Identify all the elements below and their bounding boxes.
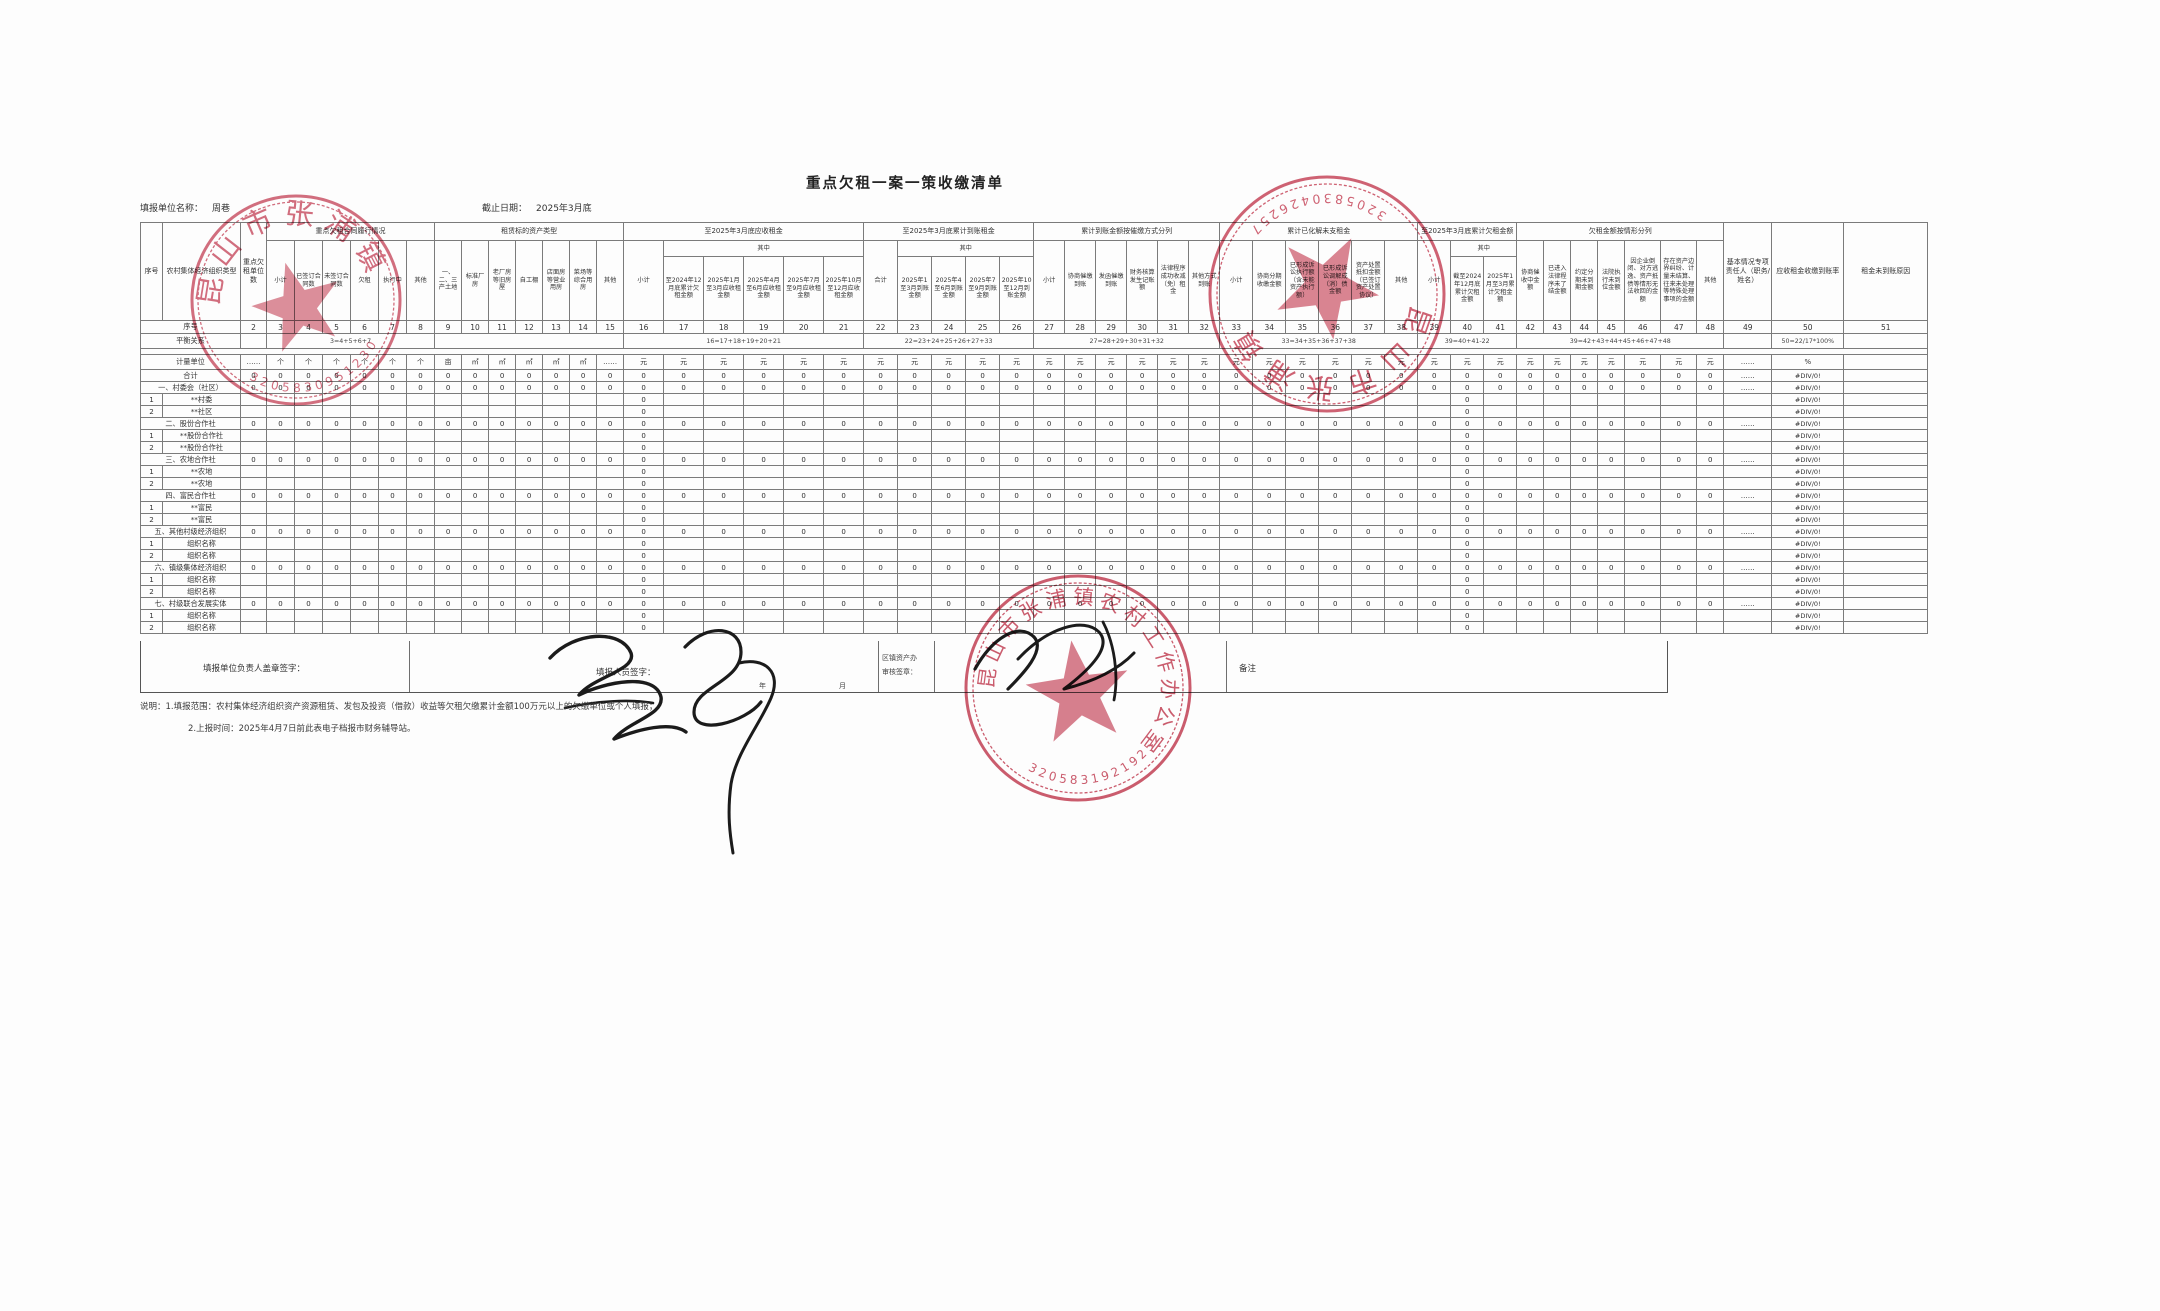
table-cell — [824, 574, 864, 586]
table-cell — [543, 514, 570, 526]
table-cell: 0 — [435, 562, 462, 574]
table-cell — [241, 478, 267, 490]
table-cell: 0 — [1571, 598, 1598, 610]
table-cell — [1598, 574, 1625, 586]
table-cell — [323, 466, 351, 478]
table-cell: 元 — [664, 355, 704, 370]
table-cell: 0 — [898, 454, 932, 466]
table-cell — [1484, 466, 1517, 478]
table-cell: 0 — [966, 418, 1000, 430]
table-cell: 0 — [379, 418, 407, 430]
table-cell — [1484, 538, 1517, 550]
table-cell — [932, 466, 966, 478]
table-cell — [932, 406, 966, 418]
table-cell: 0 — [704, 562, 744, 574]
leader-handwritten-signature — [535, 603, 797, 859]
table-cell: 12 — [516, 321, 543, 334]
table-cell — [1598, 478, 1625, 490]
table-cell: 0 — [407, 526, 435, 538]
table-cell: 17 — [664, 321, 704, 334]
table-cell — [570, 502, 597, 514]
table-cell — [241, 466, 267, 478]
table-cell — [489, 574, 516, 586]
table-cell — [435, 610, 462, 622]
table-cell — [1385, 622, 1418, 634]
table-cell — [516, 478, 543, 490]
table-cell: 0 — [1484, 526, 1517, 538]
table-cell: ㎡ — [570, 355, 597, 370]
table-cell — [1517, 502, 1544, 514]
table-cell — [898, 538, 932, 550]
table-cell: 19 — [744, 321, 784, 334]
table-cell: 元 — [1034, 355, 1065, 370]
table-cell — [1544, 574, 1571, 586]
table-cell — [864, 538, 898, 550]
table-cell — [1189, 502, 1220, 514]
table-cell — [932, 514, 966, 526]
table-cell — [1352, 430, 1385, 442]
table-cell — [1724, 406, 1772, 418]
table-cell: 0 — [1253, 454, 1286, 466]
table-cell: 1 — [141, 430, 163, 442]
table-cell: 0 — [1189, 490, 1220, 502]
table-cell — [435, 514, 462, 526]
table-cell — [1724, 538, 1772, 550]
table-cell: 0 — [543, 370, 570, 382]
table-cell — [462, 514, 489, 526]
table-cell: 0 — [664, 454, 704, 466]
table-cell: 0 — [624, 382, 664, 394]
table-cell: 0 — [624, 502, 664, 514]
table-cell — [1418, 586, 1451, 598]
table-cell — [1352, 502, 1385, 514]
table-cell — [664, 478, 704, 490]
table-cell — [462, 586, 489, 598]
table-cell: 29 — [1096, 321, 1127, 334]
table-cell — [824, 406, 864, 418]
table-cell — [1253, 514, 1286, 526]
table-cell — [435, 394, 462, 406]
table-cell — [1724, 574, 1772, 586]
table-cell — [1220, 514, 1253, 526]
table-cell — [1253, 610, 1286, 622]
table-cell — [241, 550, 267, 562]
header-cell: 法院执行未到位金额 — [1598, 241, 1625, 321]
table-cell — [744, 430, 784, 442]
table-cell: 0 — [1625, 598, 1661, 610]
table-cell: 0 — [1451, 466, 1484, 478]
table-cell — [597, 574, 624, 586]
note-line-2: 2.上报时间：2025年4月7日前此表电子档报市财务辅导站。 — [188, 722, 416, 734]
table-cell: #DIV/0! — [1772, 622, 1844, 634]
table-cell: 0 — [1697, 382, 1724, 394]
header-cell: 至2025年3月底应收租金 — [624, 223, 864, 241]
table-cell — [407, 406, 435, 418]
table-cell — [462, 502, 489, 514]
table-cell — [1319, 538, 1352, 550]
table-cell: 0 — [1661, 562, 1697, 574]
table-cell — [570, 442, 597, 454]
table-cell — [1220, 586, 1253, 598]
table-cell: 0 — [1451, 370, 1484, 382]
table-cell: 0 — [1544, 370, 1571, 382]
table-cell — [323, 610, 351, 622]
table-cell: 0 — [351, 526, 379, 538]
table-cell: 0 — [462, 418, 489, 430]
table-cell — [1661, 502, 1697, 514]
table-cell — [932, 430, 966, 442]
table-cell — [1418, 550, 1451, 562]
data-row: 1**富民00#DIV/0! — [141, 502, 1928, 514]
table-cell — [1598, 514, 1625, 526]
table-cell — [295, 550, 323, 562]
header-cell: 2025年10至12月到账金额 — [1000, 257, 1034, 321]
table-cell — [1697, 478, 1724, 490]
table-cell — [664, 502, 704, 514]
table-cell: 31 — [1158, 321, 1189, 334]
table-cell — [407, 574, 435, 586]
table-cell — [516, 574, 543, 586]
document-title: 重点欠租一案一策收缴清单 — [750, 172, 1060, 193]
table-cell: **富民 — [163, 514, 241, 526]
header-cell: 欠租金额按情形分列 — [1517, 223, 1724, 241]
table-cell — [1661, 586, 1697, 598]
table-cell: 0 — [1352, 526, 1385, 538]
table-cell: 0 — [489, 418, 516, 430]
table-cell — [864, 406, 898, 418]
table-cell: 0 — [624, 442, 664, 454]
header-cell: 序号 — [141, 223, 163, 321]
table-cell: 0 — [435, 490, 462, 502]
table-cell — [1571, 430, 1598, 442]
table-cell — [1544, 466, 1571, 478]
table-cell: 0 — [624, 394, 664, 406]
table-cell: 0 — [1418, 526, 1451, 538]
table-cell — [1385, 538, 1418, 550]
table-cell — [379, 430, 407, 442]
table-cell — [516, 406, 543, 418]
table-cell — [1544, 514, 1571, 526]
table-cell: 0 — [1127, 526, 1158, 538]
table-cell: 元 — [932, 355, 966, 370]
table-cell — [704, 502, 744, 514]
table-cell: 0 — [1000, 526, 1034, 538]
table-cell — [1253, 478, 1286, 490]
table-cell: 组织名称 — [163, 610, 241, 622]
table-cell — [435, 478, 462, 490]
table-cell — [323, 586, 351, 598]
table-cell — [1096, 550, 1127, 562]
table-cell — [1598, 466, 1625, 478]
table-cell — [597, 466, 624, 478]
table-cell: 0 — [1352, 562, 1385, 574]
table-cell: 0 — [664, 490, 704, 502]
table-cell: 0 — [543, 562, 570, 574]
table-cell — [1517, 394, 1544, 406]
table-cell — [704, 514, 744, 526]
table-cell: 0 — [1544, 382, 1571, 394]
table-cell: 39=42+43+44+45+46+47+48 — [1517, 334, 1724, 349]
table-cell: 42 — [1517, 321, 1544, 334]
table-cell: 0 — [1319, 490, 1352, 502]
table-cell: 0 — [295, 526, 323, 538]
table-cell — [323, 550, 351, 562]
table-cell — [1158, 514, 1189, 526]
table-cell — [351, 586, 379, 598]
table-cell: 0 — [1220, 526, 1253, 538]
table-cell — [784, 502, 824, 514]
table-cell — [1034, 502, 1065, 514]
table-cell — [1484, 586, 1517, 598]
cutoff-date-value: 2025年3月底 — [536, 204, 592, 214]
official-stamp-bottom-center: 昆山市张浦镇农村工作办公室 3205831921925 — [958, 568, 1198, 808]
table-cell: 元 — [1000, 355, 1034, 370]
table-cell — [864, 394, 898, 406]
table-cell: …… — [1724, 490, 1772, 502]
table-cell — [1000, 430, 1034, 442]
table-cell — [898, 478, 932, 490]
table-cell: 0 — [1598, 598, 1625, 610]
table-cell — [744, 574, 784, 586]
table-cell: 0 — [1661, 490, 1697, 502]
table-cell: 0 — [784, 382, 824, 394]
table-cell — [1724, 430, 1772, 442]
table-cell — [489, 406, 516, 418]
table-cell — [295, 622, 323, 634]
table-cell — [1484, 550, 1517, 562]
table-cell — [966, 442, 1000, 454]
table-cell — [295, 478, 323, 490]
table-cell: #DIV/0! — [1772, 598, 1844, 610]
table-cell — [1661, 514, 1697, 526]
table-cell — [966, 406, 1000, 418]
table-cell: 0 — [1352, 598, 1385, 610]
header-cell: 2025年1月至3月累计欠租金额 — [1484, 257, 1517, 321]
table-cell: 0 — [1451, 610, 1484, 622]
table-cell — [462, 442, 489, 454]
table-cell — [295, 514, 323, 526]
table-cell — [1385, 466, 1418, 478]
table-cell — [898, 442, 932, 454]
table-cell — [1844, 622, 1928, 634]
table-cell: 元 — [744, 355, 784, 370]
table-cell: 0 — [1127, 490, 1158, 502]
table-cell: 0 — [435, 526, 462, 538]
table-cell — [295, 430, 323, 442]
table-cell — [1625, 394, 1661, 406]
table-cell — [489, 514, 516, 526]
table-cell: 0 — [932, 454, 966, 466]
table-cell — [267, 466, 295, 478]
table-cell — [1697, 442, 1724, 454]
table-cell — [435, 502, 462, 514]
table-cell: 26 — [1000, 321, 1034, 334]
table-cell — [1418, 478, 1451, 490]
table-cell — [570, 406, 597, 418]
table-cell — [543, 586, 570, 598]
table-cell — [570, 514, 597, 526]
table-cell: ㎡ — [543, 355, 570, 370]
table-cell: 0 — [462, 490, 489, 502]
table-cell: 14 — [570, 321, 597, 334]
table-cell — [597, 550, 624, 562]
table-cell: 0 — [624, 514, 664, 526]
table-cell — [1598, 442, 1625, 454]
table-cell — [435, 406, 462, 418]
header-cell: 协商催缴到账 — [1065, 241, 1096, 321]
table-cell — [267, 514, 295, 526]
table-cell: #DIV/0! — [1772, 406, 1844, 418]
table-cell: 元 — [1661, 355, 1697, 370]
divider — [1226, 641, 1227, 692]
table-cell — [864, 478, 898, 490]
table-cell: #DIV/0! — [1772, 526, 1844, 538]
table-cell — [744, 394, 784, 406]
table-cell — [1544, 550, 1571, 562]
table-cell: 0 — [864, 454, 898, 466]
table-cell: #DIV/0! — [1772, 418, 1844, 430]
table-cell: 元 — [1484, 355, 1517, 370]
table-cell — [1220, 574, 1253, 586]
table-cell — [1697, 406, 1724, 418]
table-cell — [570, 430, 597, 442]
official-stamp-top-left: 昆山市张浦镇 3205830951230 — [183, 187, 409, 413]
table-cell — [295, 502, 323, 514]
header-cell: 老厂房等旧房屋 — [489, 241, 516, 321]
review-label-line2: 审核签章： — [882, 667, 917, 677]
data-row: 1组织名称00#DIV/0! — [141, 538, 1928, 550]
table-cell: 0 — [624, 550, 664, 562]
table-cell — [489, 394, 516, 406]
table-cell: #DIV/0! — [1772, 502, 1844, 514]
table-cell — [1127, 550, 1158, 562]
data-row: 三、农地合作社000000000000000000000000000000000… — [141, 454, 1928, 466]
table-cell: 0 — [1034, 526, 1065, 538]
table-cell — [267, 574, 295, 586]
header-cell: 2025年4月至6月应收租金额 — [744, 257, 784, 321]
table-cell — [323, 622, 351, 634]
header-cell: 至2025年3月底累计到账租金 — [864, 223, 1034, 241]
data-row: 1**股份合作社00#DIV/0! — [141, 430, 1928, 442]
table-cell — [295, 610, 323, 622]
table-cell — [704, 550, 744, 562]
table-cell: 三、农地合作社 — [141, 454, 241, 466]
table-cell — [407, 622, 435, 634]
table-cell — [543, 394, 570, 406]
table-cell: 元 — [624, 355, 664, 370]
table-cell: 0 — [1571, 490, 1598, 502]
table-cell — [1625, 514, 1661, 526]
table-cell: 元 — [864, 355, 898, 370]
table-cell — [462, 466, 489, 478]
table-cell — [1844, 562, 1928, 574]
table-cell: 1 — [141, 466, 163, 478]
review-label-line1: 区镇资产办 — [882, 653, 917, 663]
table-cell — [664, 442, 704, 454]
table-cell: …… — [1724, 418, 1772, 430]
table-cell: 0 — [1418, 598, 1451, 610]
table-cell: 0 — [1000, 382, 1034, 394]
table-cell — [543, 430, 570, 442]
table-cell — [1189, 478, 1220, 490]
table-cell: 0 — [1451, 406, 1484, 418]
table-cell: 0 — [1661, 418, 1697, 430]
table-cell: 0 — [407, 382, 435, 394]
table-cell — [1661, 430, 1697, 442]
table-cell — [407, 430, 435, 442]
table-cell — [516, 502, 543, 514]
table-cell: 元 — [784, 355, 824, 370]
table-cell — [1697, 430, 1724, 442]
table-cell: 0 — [462, 526, 489, 538]
table-cell — [1352, 574, 1385, 586]
table-cell: 0 — [1418, 562, 1451, 574]
table-cell — [704, 466, 744, 478]
table-cell — [1220, 442, 1253, 454]
table-cell — [1418, 622, 1451, 634]
table-cell — [435, 430, 462, 442]
table-cell — [1065, 406, 1096, 418]
header-cell: 2025年4至6月到账金额 — [932, 257, 966, 321]
table-cell — [1385, 514, 1418, 526]
header-cell: 标准厂房 — [462, 241, 489, 321]
table-cell — [1571, 610, 1598, 622]
table-cell — [597, 586, 624, 598]
table-cell — [351, 430, 379, 442]
table-cell: 0 — [1286, 598, 1319, 610]
table-cell — [1352, 610, 1385, 622]
table-cell — [704, 442, 744, 454]
divider — [878, 641, 879, 692]
table-cell — [1697, 514, 1724, 526]
table-cell: 27 — [1034, 321, 1065, 334]
table-cell — [379, 478, 407, 490]
table-cell: 0 — [864, 490, 898, 502]
table-cell: 0 — [898, 562, 932, 574]
table-cell: 0 — [597, 418, 624, 430]
table-cell — [570, 574, 597, 586]
header-cell: 截至2024年12月底累计欠租金额 — [1451, 257, 1484, 321]
table-cell — [1517, 478, 1544, 490]
table-cell — [379, 514, 407, 526]
table-cell: 50 — [1772, 321, 1844, 334]
table-cell — [241, 610, 267, 622]
table-cell — [784, 550, 824, 562]
table-cell: 0 — [267, 526, 295, 538]
table-cell: 0 — [1517, 526, 1544, 538]
table-cell: 0 — [1451, 478, 1484, 490]
table-cell — [1661, 550, 1697, 562]
table-cell — [379, 622, 407, 634]
table-cell — [1844, 490, 1928, 502]
table-cell: 0 — [784, 418, 824, 430]
table-cell — [1571, 478, 1598, 490]
table-cell: 0 — [664, 562, 704, 574]
table-cell: 0 — [624, 478, 664, 490]
table-cell: ㎡ — [516, 355, 543, 370]
table-cell — [966, 430, 1000, 442]
table-cell — [489, 502, 516, 514]
table-cell: 0 — [295, 490, 323, 502]
table-cell — [516, 538, 543, 550]
table-cell — [1000, 478, 1034, 490]
table-cell: 0 — [1484, 598, 1517, 610]
table-cell — [1844, 394, 1928, 406]
table-cell — [1034, 514, 1065, 526]
table-cell — [1844, 442, 1928, 454]
table-cell — [407, 442, 435, 454]
table-cell — [1096, 406, 1127, 418]
